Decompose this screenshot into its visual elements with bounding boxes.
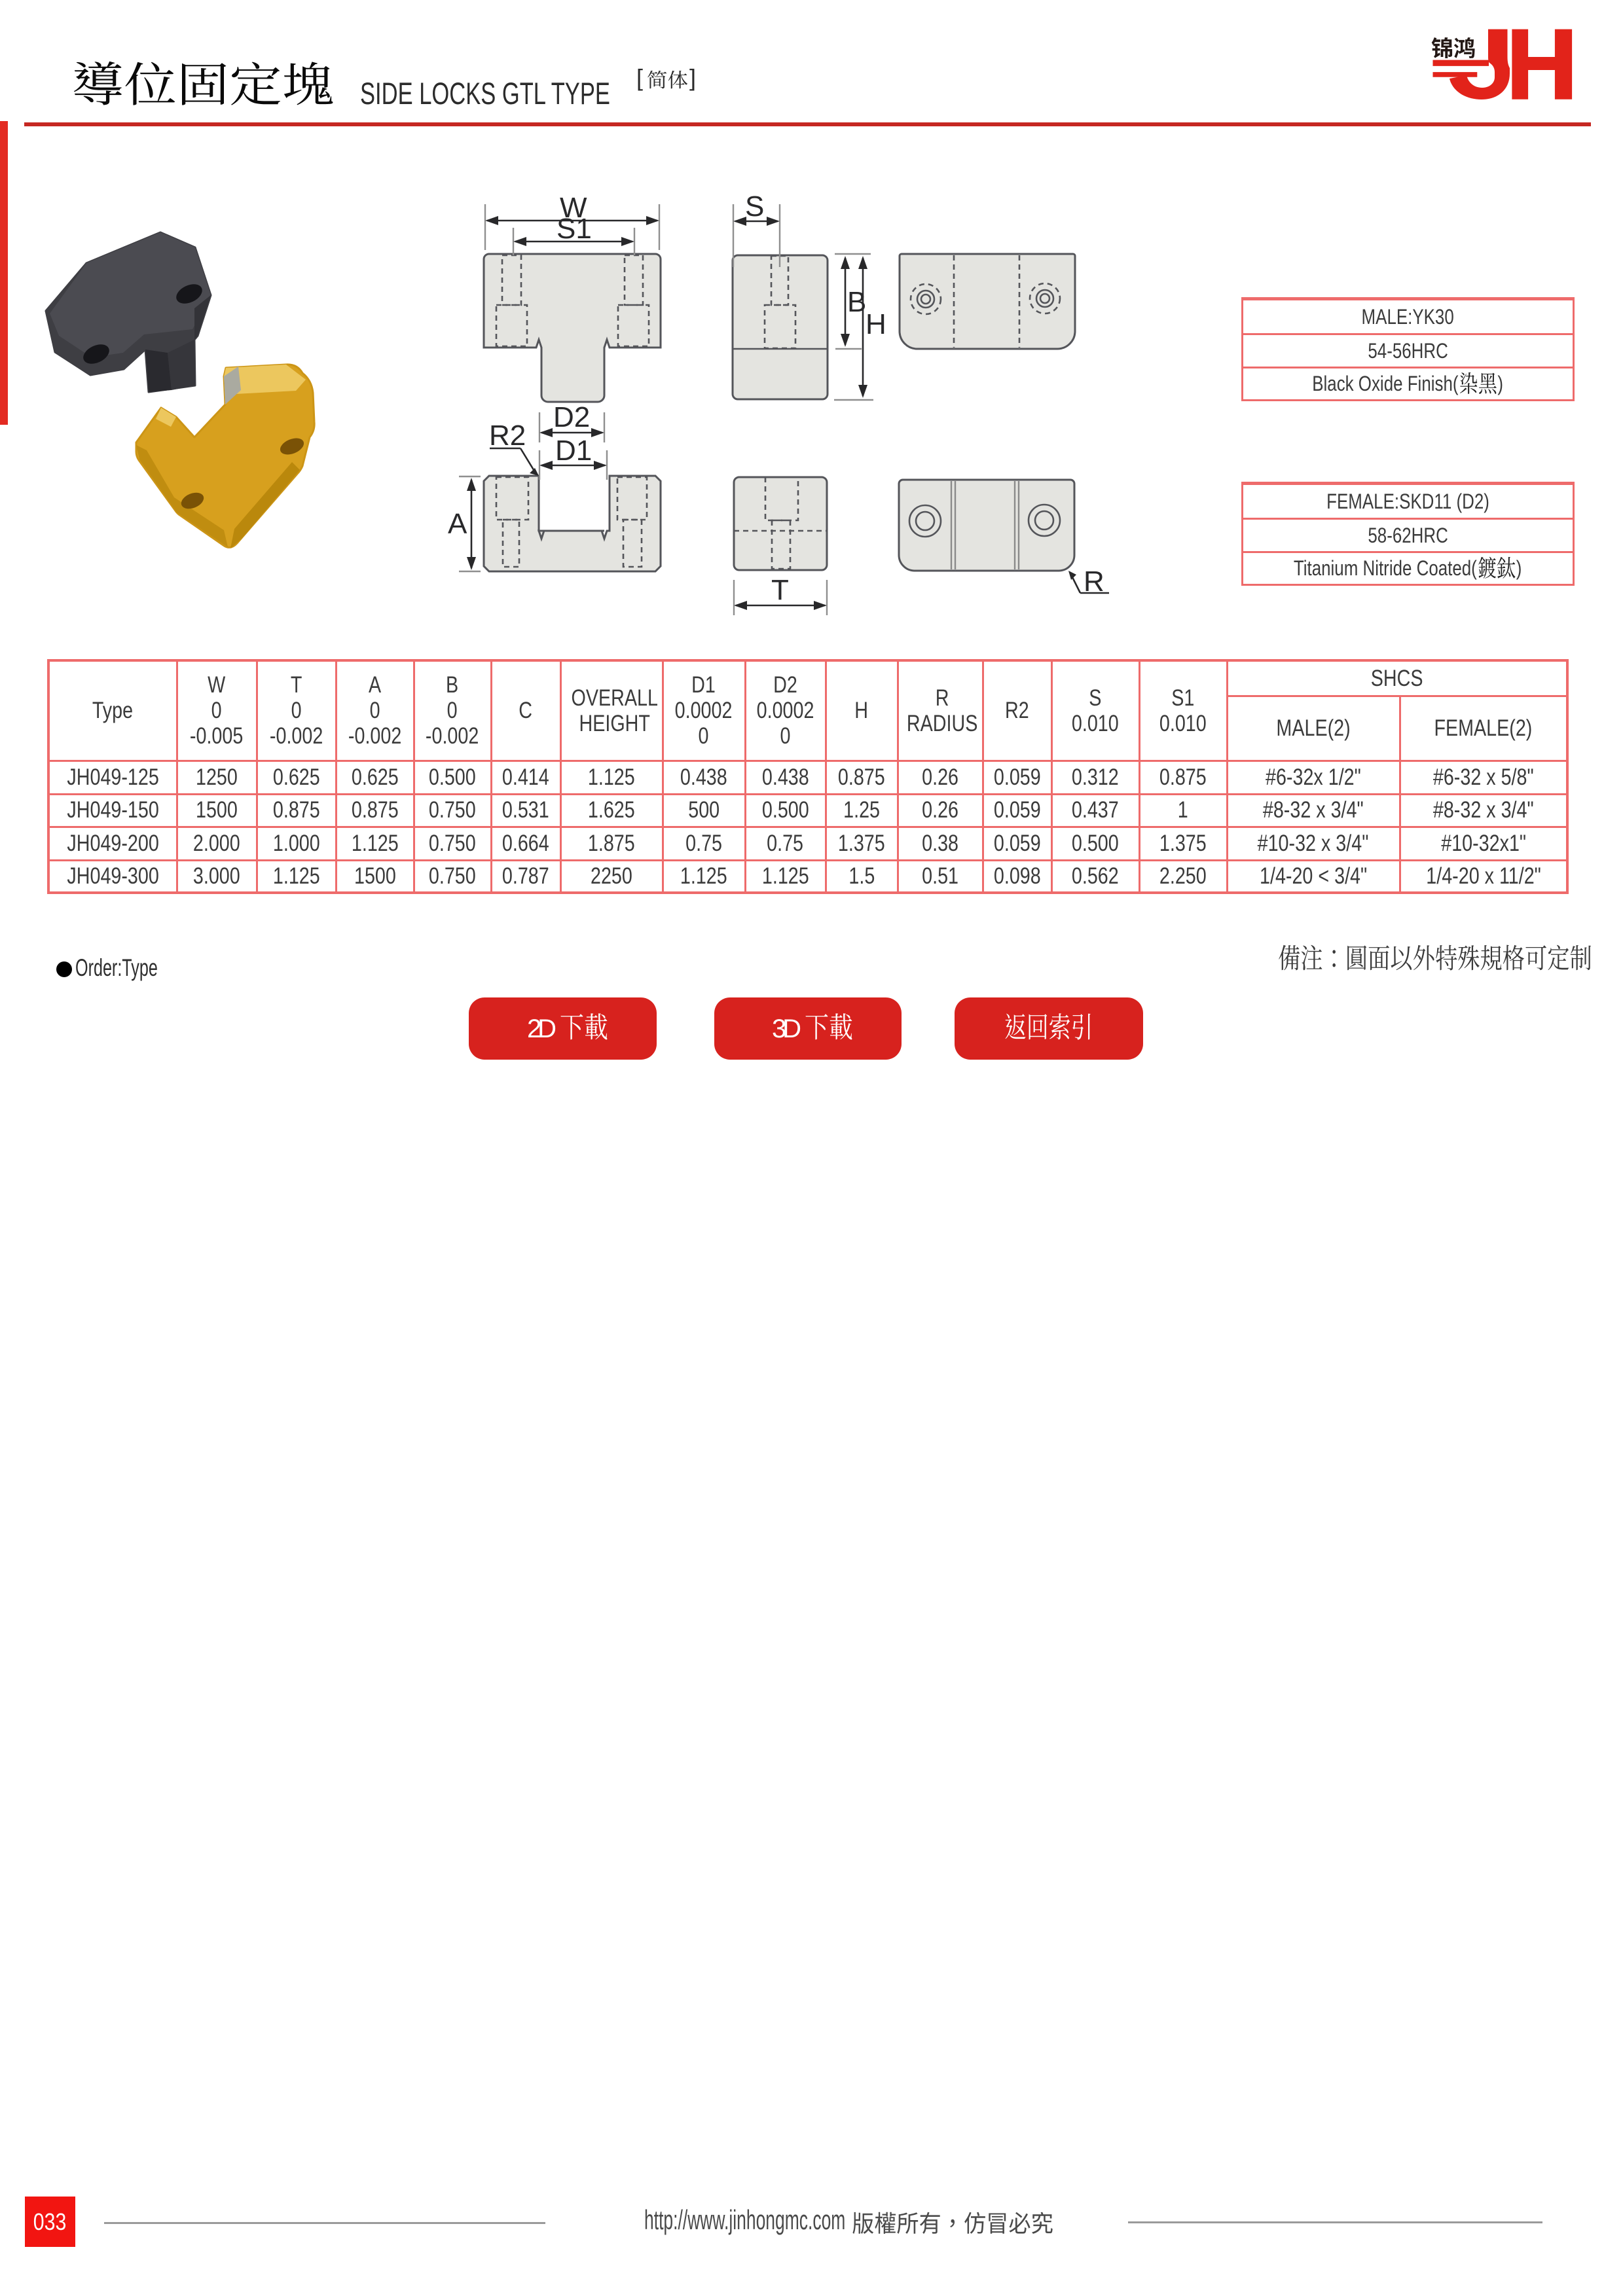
- svg-text:D1: D1: [555, 435, 592, 467]
- svg-text:S1: S1: [556, 213, 592, 245]
- svg-text:D2: D2: [553, 401, 590, 433]
- svg-text:H: H: [866, 308, 886, 340]
- svg-text:A: A: [448, 508, 467, 540]
- svg-text:3D: 3D: [772, 1014, 801, 1043]
- svg-text:2D: 2D: [527, 1014, 556, 1043]
- svg-text:T: T: [771, 574, 789, 606]
- svg-text:S: S: [745, 190, 764, 223]
- svg-text:R: R: [1084, 565, 1104, 598]
- svg-text:R2: R2: [489, 420, 526, 452]
- svg-text:B: B: [847, 286, 866, 318]
